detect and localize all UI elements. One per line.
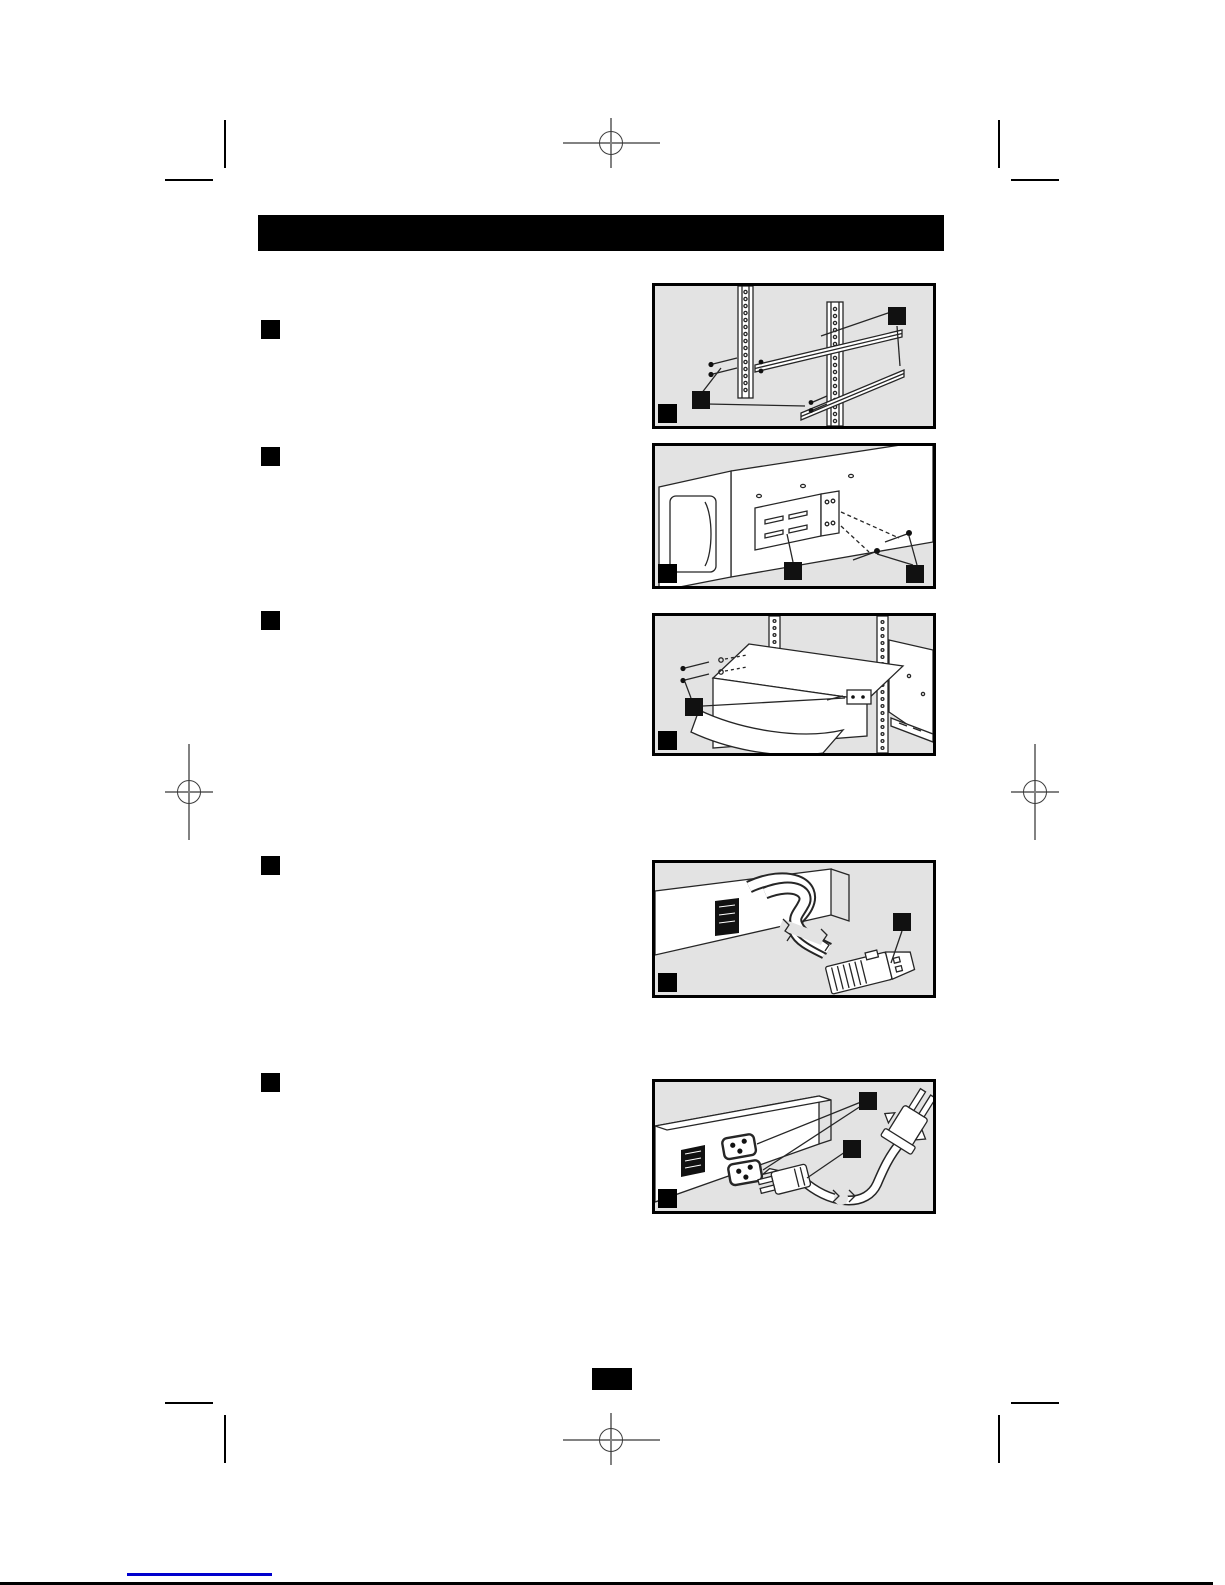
figure-connect-power-cords: [652, 1079, 936, 1214]
regmark-right-circle: [1023, 780, 1047, 804]
crop-mark-bottom-left-h: [165, 1402, 213, 1404]
callout-box-screws: [685, 698, 703, 716]
step-marker-1: [261, 320, 280, 339]
page-number-box: [592, 1368, 632, 1390]
rack-install-illustration: [655, 616, 933, 753]
regmark-top-center-circle: [599, 131, 623, 155]
crop-mark-bottom-right-h: [1011, 1402, 1059, 1404]
plug-free-end: [874, 1082, 933, 1157]
outlet-upper: [722, 1134, 757, 1160]
power-cord-illustration: [655, 1082, 933, 1211]
crop-mark-top-left-h: [165, 179, 213, 181]
figure-attach-bracket-to-unit: [652, 443, 936, 589]
callout-box-bracket-screws: [906, 565, 924, 583]
figure1-step-number-box: [658, 404, 677, 423]
figure2-step-number-box: [658, 564, 677, 583]
callout-box-rail-screws: [692, 391, 710, 409]
crop-mark-top-left-v: [224, 120, 226, 168]
regmark-bottom-center-circle: [599, 1428, 623, 1452]
figure5-step-number-box: [658, 1189, 677, 1208]
figure4-step-number-box: [658, 973, 677, 992]
bracket-illustration: [655, 446, 933, 586]
step-marker-2: [261, 447, 280, 466]
step-marker-3: [261, 611, 280, 630]
step-marker-5: [261, 1073, 280, 1092]
figure-slide-unit-into-rack: [652, 613, 936, 756]
callout-box-connector: [893, 913, 911, 931]
callout-box-cord: [843, 1140, 861, 1158]
manual-page: [0, 0, 1225, 1585]
section-header-bar: [258, 215, 944, 251]
figure-battery-connector: [652, 860, 936, 998]
figure3-step-number-box: [658, 731, 677, 750]
battery-connector-illustration: [655, 863, 933, 995]
rating-label: [715, 898, 739, 936]
plug-to-unit: [756, 1160, 811, 1198]
rating-label: [681, 1145, 705, 1177]
rails-illustration: [655, 286, 933, 426]
regmark-left-circle: [177, 780, 201, 804]
battery-connector-plug: [824, 942, 915, 994]
footer-link-underline[interactable]: [127, 1573, 272, 1576]
step-marker-4: [261, 856, 280, 875]
callout-box-outlets: [859, 1092, 877, 1110]
crop-mark-top-right-v: [998, 120, 1000, 168]
crop-mark-top-right-h: [1011, 179, 1059, 181]
callout-box-rails: [888, 307, 906, 325]
crop-mark-bottom-left-v: [224, 1415, 226, 1463]
figure-attach-rails-to-rack: [652, 283, 936, 429]
outlet-lower: [728, 1160, 763, 1186]
crop-mark-bottom-right-v: [998, 1415, 1000, 1463]
callout-box-bracket: [784, 562, 802, 580]
